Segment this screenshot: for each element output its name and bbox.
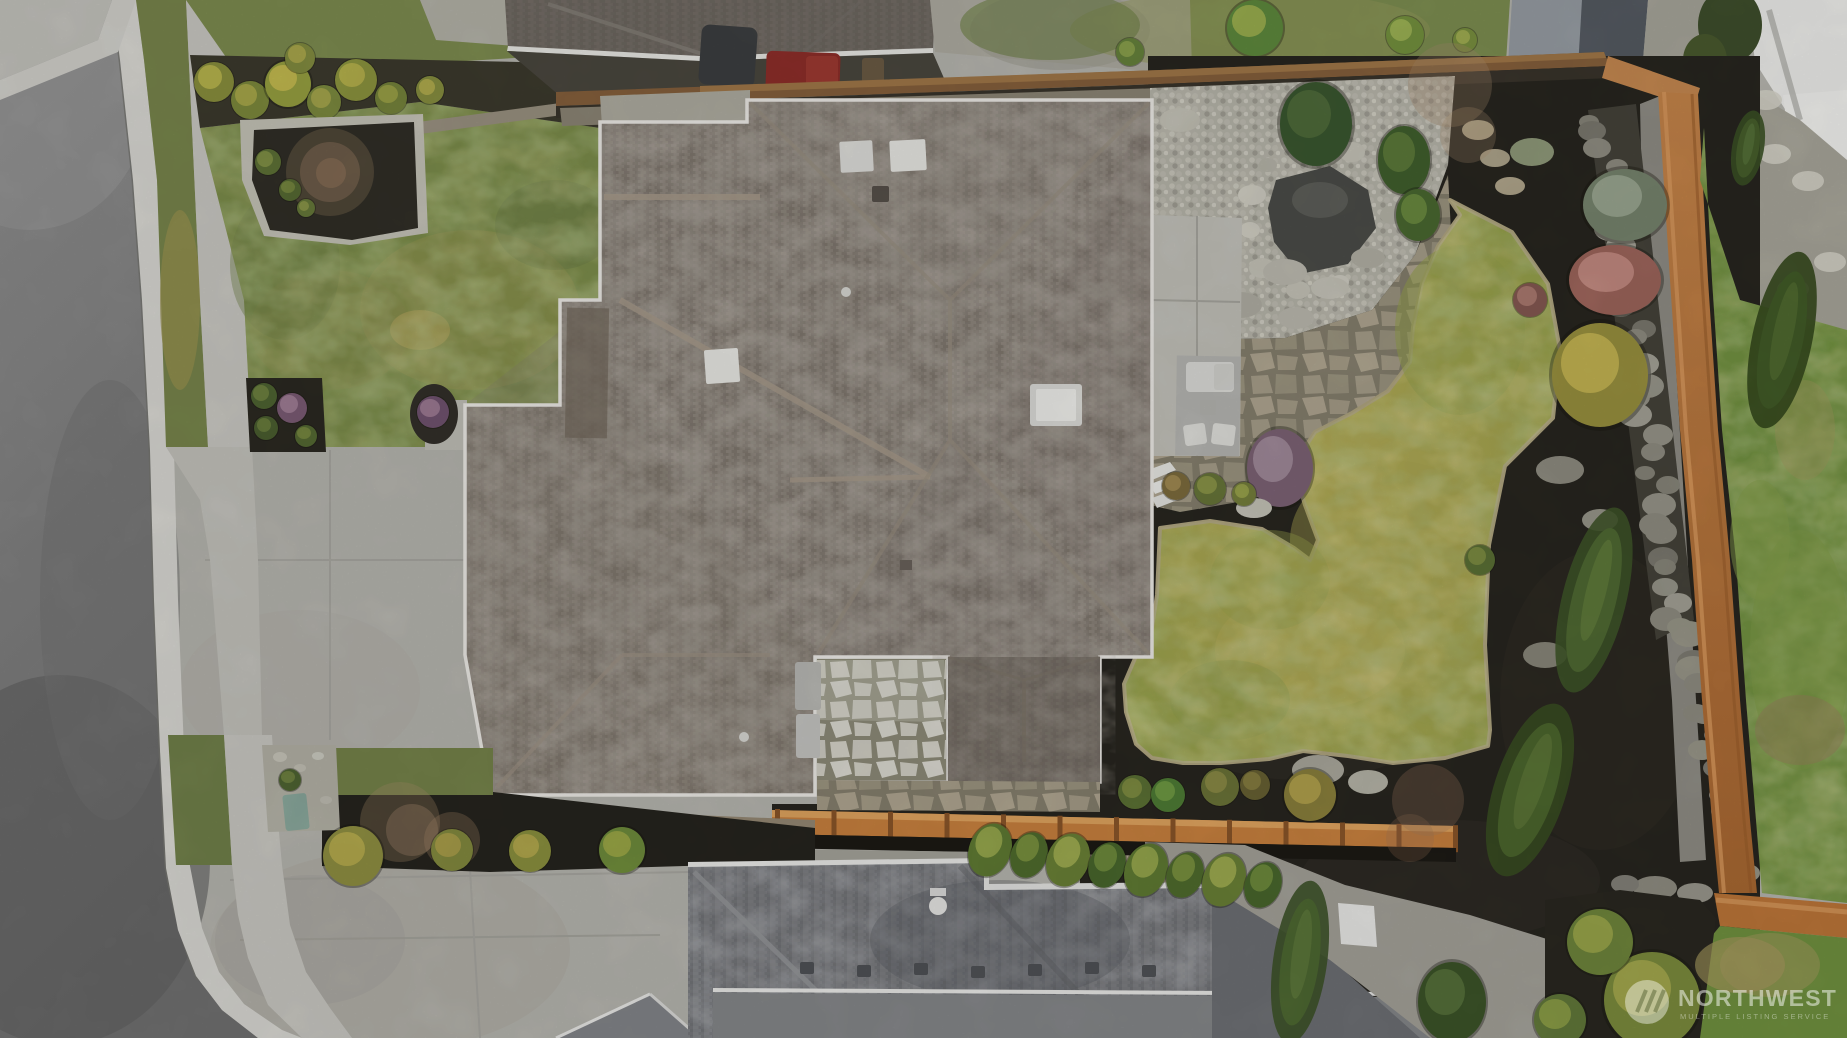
- svg-text:NORTHWEST: NORTHWEST: [1678, 985, 1837, 1011]
- svg-text:MULTIPLE LISTING SERVICE: MULTIPLE LISTING SERVICE: [1680, 1012, 1830, 1021]
